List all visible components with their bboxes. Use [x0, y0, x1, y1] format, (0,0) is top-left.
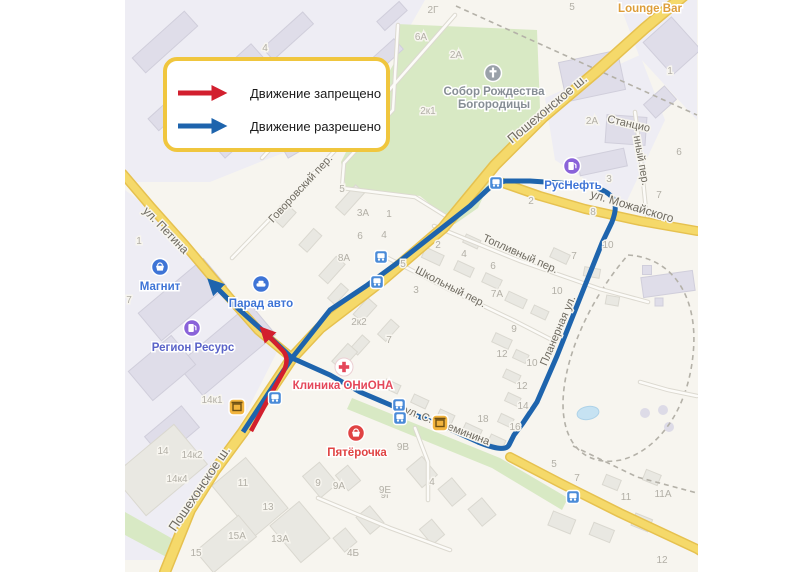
building-number: 14: [157, 446, 169, 457]
building-number: 9В: [397, 442, 410, 453]
rect: [395, 401, 402, 406]
rect: [492, 68, 494, 78]
circle: [382, 259, 384, 261]
rect: [490, 70, 497, 72]
parad-avto-label: Парад авто: [229, 298, 293, 310]
klinika-oniona-label: Клиника ОНиОНА: [293, 380, 394, 392]
building-number: 18: [477, 414, 489, 425]
building-number: 1: [667, 66, 673, 77]
circle: [574, 499, 576, 501]
building-number: 12: [656, 555, 668, 566]
building-number: 6: [357, 231, 363, 242]
bus-stop-icon: [490, 177, 503, 190]
building-number: 9Е: [379, 485, 392, 496]
legend-label-allowed: Движение разрешено: [250, 119, 381, 134]
map-screenshot: 42Г6А2А2к1512А637281053А1648А532467А7109…: [0, 0, 800, 572]
building-number: 7: [571, 251, 577, 262]
building-number: 11: [238, 478, 249, 489]
sobor-label-line2: Богородицы: [458, 99, 530, 111]
circle: [400, 407, 402, 409]
building-number: 12: [516, 381, 528, 392]
rect: [568, 162, 573, 170]
rect: [258, 281, 263, 284]
parad-avto-icon: [253, 276, 270, 293]
region-resurs-label: Регион Ресурс: [152, 342, 235, 354]
legend-label-prohibited: Движение запрещено: [250, 86, 381, 101]
rect: [432, 415, 448, 431]
legend-row-allowed: Движение разрешено: [167, 116, 381, 136]
circle: [378, 259, 380, 261]
building-number: 5: [569, 2, 575, 13]
building-number: 7: [574, 473, 580, 484]
building-number: 13: [262, 502, 274, 513]
building-number: 4: [381, 230, 387, 241]
rect: [492, 179, 499, 184]
sobor-label: Собор Рождества: [444, 86, 546, 98]
circle: [378, 284, 380, 286]
building-number: 12: [496, 349, 508, 360]
building-number: 7: [386, 335, 392, 346]
region-resurs-icon: [184, 320, 201, 337]
circle: [493, 185, 495, 187]
building-number: 2: [435, 240, 441, 251]
rect: [257, 283, 266, 286]
bus-stop-icon: [393, 399, 406, 412]
building-number: 5: [339, 184, 345, 195]
building-number: 14к1: [201, 395, 222, 406]
building-number: 2А: [586, 116, 599, 127]
building-number: 3: [606, 174, 612, 185]
bus-stop-icon: [371, 276, 384, 289]
building-number: 6: [676, 147, 682, 158]
building-number: 9: [511, 324, 517, 335]
prohibited-arrow-icon: [175, 85, 237, 101]
building-number: 4: [262, 43, 268, 54]
building-number: 4: [429, 477, 435, 488]
path: [156, 266, 164, 271]
lounge-bar-label: Lounge Bar: [618, 3, 682, 15]
landmark-icon: [432, 415, 448, 431]
rect: [271, 394, 278, 399]
building-number: 9А: [333, 481, 346, 492]
building-number: 4Б: [347, 548, 360, 559]
building-number: 3: [413, 285, 419, 296]
klinika-oniona-icon: [335, 358, 353, 376]
rect: [339, 365, 349, 369]
building-number: 1: [136, 236, 142, 247]
building-number: 7: [126, 295, 132, 306]
rusneft-label: РусНефть: [544, 180, 602, 192]
building-number: 4: [461, 249, 467, 260]
building-number: 14к2: [181, 450, 202, 461]
building-number: 7А: [491, 289, 504, 300]
building-number: 2к1: [420, 106, 436, 117]
legend: Движение запрещено Движение разрешено: [163, 57, 390, 152]
building-number: 11: [621, 492, 632, 503]
circle: [497, 185, 499, 187]
sobor-icon: [485, 65, 502, 82]
building-number: 13А: [271, 534, 289, 545]
pyaterochka-label: Пятёрочка: [327, 447, 387, 459]
building-number: 8А: [338, 253, 351, 264]
building-number: 2к2: [351, 317, 367, 328]
building-number: 5: [551, 459, 557, 470]
magnit-label: Магнит: [140, 281, 181, 293]
building-number: 2Г: [428, 5, 440, 16]
rect: [396, 414, 403, 419]
bus-stop-icon: [269, 392, 282, 405]
legend-row-prohibited: Движение запрещено: [167, 83, 381, 103]
rusneft-icon: [564, 158, 581, 175]
circle: [396, 407, 398, 409]
allowed-arrow-icon: [175, 118, 237, 134]
building-number: 15А: [228, 531, 246, 542]
building-number: 6А: [415, 32, 428, 43]
bus-stop-icon: [375, 251, 388, 264]
path: [352, 432, 360, 437]
building-number: 10: [602, 240, 614, 251]
building-number: 7: [656, 190, 662, 201]
bus-stop-icon: [394, 412, 407, 425]
building-number: 15: [190, 548, 202, 559]
circle: [272, 400, 274, 402]
rect: [377, 253, 384, 258]
building-number: 8: [590, 207, 596, 218]
building-number: 10: [551, 286, 563, 297]
circle: [401, 420, 403, 422]
pyaterochka-icon: [348, 425, 365, 442]
building-number: 14к4: [166, 474, 187, 485]
building-number: 6: [490, 261, 496, 272]
building-number: 14: [517, 401, 529, 412]
building-number: 1: [386, 209, 392, 220]
circle: [276, 400, 278, 402]
circle: [397, 420, 399, 422]
building-number: 9: [315, 478, 321, 489]
rect: [229, 399, 245, 415]
map-canvas: 42Г6А2А2к1512А637281053А1648А532467А7109…: [0, 0, 800, 572]
building-number: 2А: [450, 50, 463, 61]
building-number: 16: [509, 422, 521, 433]
circle: [570, 499, 572, 501]
building-number: 3А: [357, 208, 370, 219]
rect: [188, 324, 193, 332]
bus-stop-icon: [567, 491, 580, 504]
building-number: 5: [400, 259, 406, 270]
rect: [373, 278, 380, 283]
landmark-icon: [229, 399, 245, 415]
building-number: 11А: [654, 489, 671, 500]
magnit-icon: [152, 259, 169, 276]
building-number: 2: [528, 196, 534, 207]
rect: [569, 493, 576, 498]
building-number: 10: [526, 358, 538, 369]
circle: [374, 284, 376, 286]
